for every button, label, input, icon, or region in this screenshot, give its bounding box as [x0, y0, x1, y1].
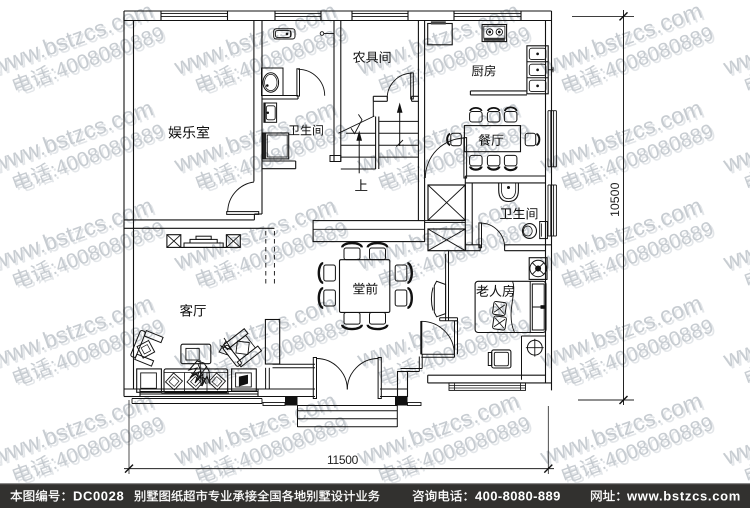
svg-text:www.bstzcs.com: www.bstzcs.com: [626, 489, 741, 504]
svg-text:11500: 11500: [327, 453, 359, 467]
svg-text:10500: 10500: [608, 182, 622, 217]
svg-text:DC0028: DC0028: [73, 489, 124, 504]
svg-text:400-8080-889: 400-8080-889: [475, 489, 561, 504]
